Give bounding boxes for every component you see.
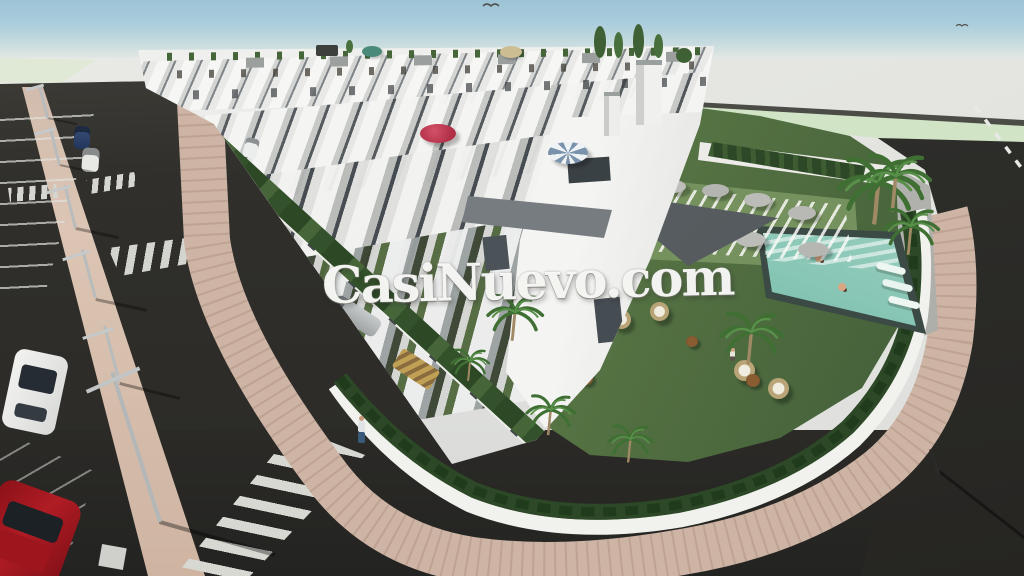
parasol-striped-blue: [548, 142, 588, 164]
egg-chair: [768, 378, 789, 399]
roof-tree: [594, 26, 606, 58]
roof-tree: [633, 24, 644, 58]
parasol-gray: [702, 184, 729, 197]
parasol-gray: [798, 242, 828, 257]
parasol-teal: [362, 46, 382, 57]
car-rear-window: [14, 402, 48, 422]
chimney: [604, 92, 620, 136]
parked-car-blue: [73, 126, 90, 150]
parasol-red: [420, 124, 456, 143]
garden-table: [746, 374, 760, 387]
watermark: CasiNuevo.com: [321, 248, 722, 316]
pedestrian-legs: [358, 432, 365, 443]
chimney: [636, 60, 662, 125]
pedestrian: [357, 416, 365, 446]
pedestrian-torso: [358, 421, 365, 432]
swimmer: [838, 283, 846, 291]
roof-tree: [346, 40, 353, 53]
roof-tree: [676, 48, 692, 63]
road-marking: [98, 544, 126, 570]
roof-tree: [614, 32, 623, 58]
roof-tree: [654, 34, 663, 58]
roof-pergola: [316, 45, 338, 56]
architectural-render: CasiNuevo.com: [0, 0, 1024, 576]
parasol-gray: [744, 193, 771, 207]
parasol-gray: [788, 206, 816, 220]
parasol-tan: [500, 46, 522, 58]
person-standing: [730, 348, 735, 361]
car-windshield: [18, 364, 58, 395]
garden-table: [686, 336, 698, 347]
